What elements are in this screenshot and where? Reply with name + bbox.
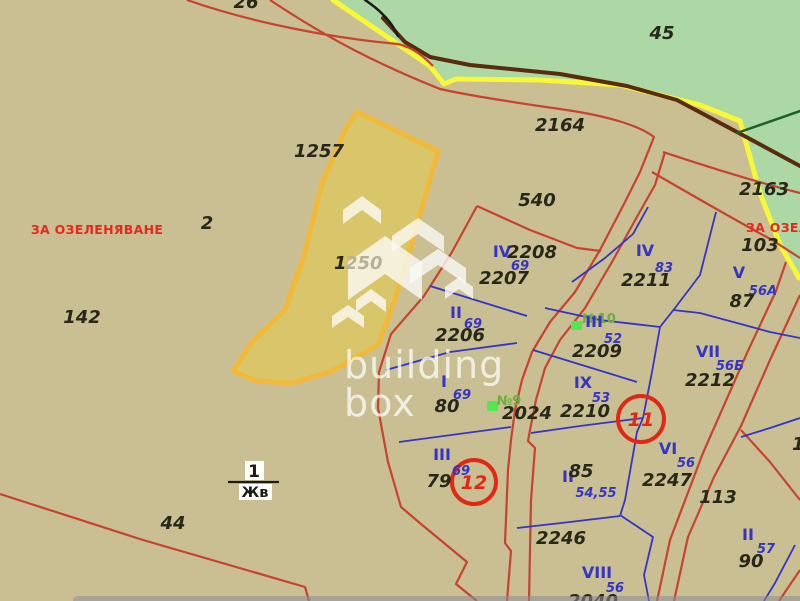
map-label-2024: 2024	[502, 403, 552, 424]
map-label-79: 79	[426, 471, 451, 492]
map-label-2206: 2206	[435, 325, 485, 346]
map-label-54,55: 54,55	[575, 486, 616, 501]
map-label-16: 16	[792, 434, 800, 455]
map-label-113: 113	[699, 487, 737, 508]
map-label-2211: 2211	[621, 270, 671, 291]
map-label-2212: 2212	[685, 370, 735, 391]
map-label-III: III	[433, 445, 451, 464]
map-label-II: II	[450, 303, 462, 322]
map-label-2163: 2163	[739, 179, 789, 200]
watermark-text-line2: box	[344, 381, 416, 425]
map-label-2247: 2247	[642, 470, 693, 491]
map-label-VI: VI	[659, 439, 677, 458]
building-marker-10	[571, 321, 582, 330]
quarter-number: 1	[248, 462, 260, 482]
map-label-IX: IX	[574, 373, 593, 392]
map-label-V: V	[733, 263, 746, 282]
map-label-2164: 2164	[535, 115, 585, 136]
map-label-2209: 2209	[572, 341, 622, 362]
map-label-ЗАОЗЕЛЕНЯВАНЕ: ЗА ОЗЕЛЕНЯВАНЕ	[31, 222, 163, 237]
map-label-103: 103	[741, 235, 779, 256]
map-label-11: 11	[628, 409, 654, 431]
map-label-12: 12	[461, 472, 487, 494]
map-label-2: 2	[201, 213, 214, 234]
map-label-26: 26	[233, 0, 258, 13]
horizontal-scrollbar[interactable]	[73, 596, 800, 601]
map-label-80: 80	[434, 396, 459, 417]
map-label-85: 85	[568, 461, 593, 482]
map-label-250: 250	[345, 253, 383, 274]
map-label-45: 45	[648, 23, 674, 44]
map-label-III: III	[585, 312, 603, 331]
map-label-2207: 2207	[479, 268, 530, 289]
cadastral-map[interactable]: buildingboxЗА ОЗЕЛЕНЯВАНЕЗА ОЗЕЛЕНЯВАНЕ2…	[0, 0, 800, 601]
map-label-44: 44	[159, 513, 185, 534]
map-label-56: 56	[677, 456, 695, 471]
map-label-II: II	[742, 525, 754, 544]
map-label-2246: 2246	[536, 528, 586, 549]
map-label-ЗАОЗЕЛЕНЯВАНЕ: ЗА ОЗЕЛЕНЯВАНЕ	[746, 220, 800, 235]
map-label-1257: 1257	[294, 141, 345, 162]
quarter-type: Жв	[242, 485, 269, 501]
cadastral-map-viewport[interactable]: buildingboxЗА ОЗЕЛЕНЯВАНЕЗА ОЗЕЛЕНЯВАНЕ2…	[0, 0, 800, 601]
map-label-90: 90	[738, 551, 763, 572]
map-label-IV: IV	[636, 241, 655, 260]
map-label-540: 540	[518, 190, 556, 211]
map-label-87: 87	[729, 291, 755, 312]
map-label-VIII: VIII	[582, 563, 612, 582]
map-label-142: 142	[63, 307, 101, 328]
map-label-2210: 2210	[560, 401, 610, 422]
map-label-I: I	[441, 372, 447, 391]
